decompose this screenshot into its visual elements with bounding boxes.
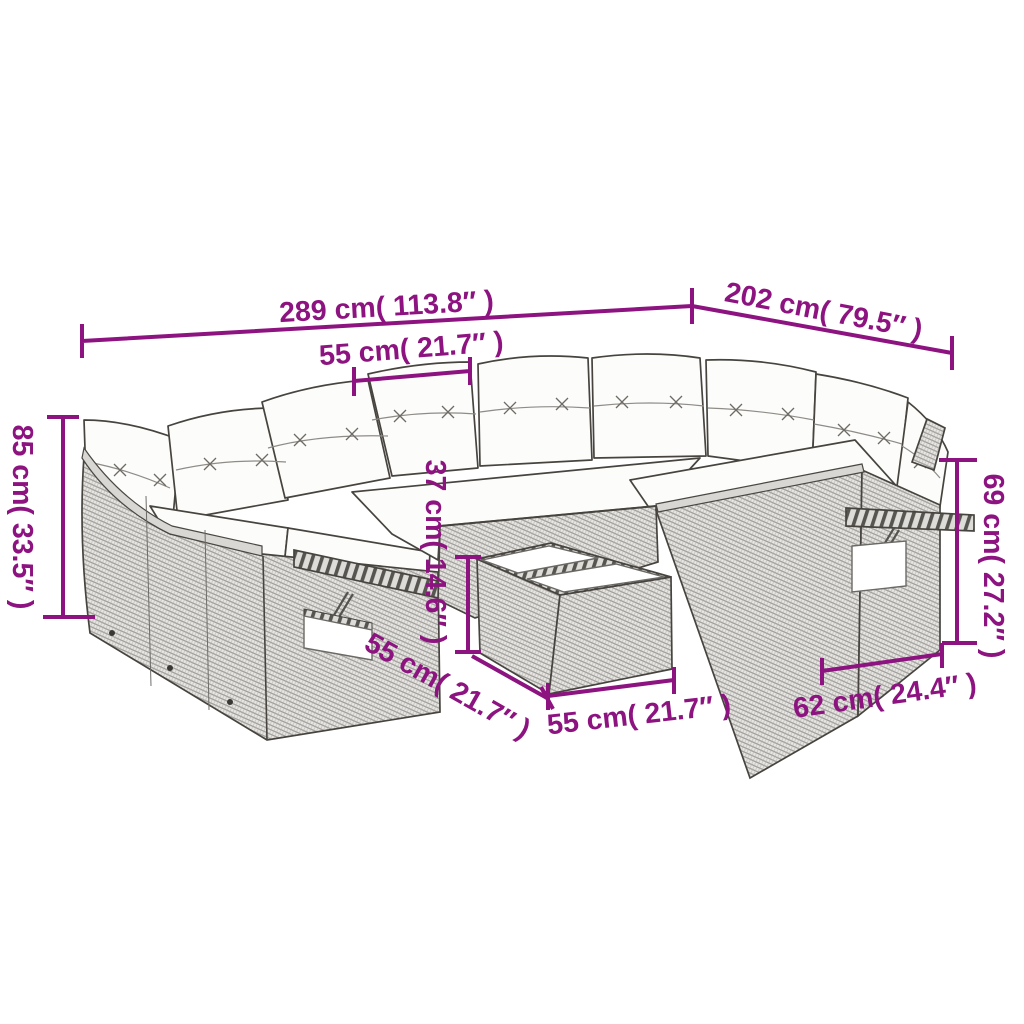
back-cushion: [478, 356, 592, 466]
back-cushion: [592, 354, 706, 458]
dim-line-69: [939, 460, 977, 668]
product-dimension-diagram: 289 cm( 113.8″ ) 202 cm( 79.5″ ) 55 cm( …: [0, 0, 1024, 1024]
dim-label-85: 85 cm( 33.5″ ): [6, 425, 38, 610]
dim-label-202: 202 cm( 79.5″ ): [722, 276, 925, 346]
dim-label-37: 37 cm( 14.6″ ): [419, 460, 451, 645]
right-folding-tray-slats: [846, 508, 974, 531]
back-cushion: [262, 380, 390, 498]
dim-right-side-depth: 202 cm( 79.5″ ): [692, 276, 952, 370]
right-inner-wicker: [656, 470, 862, 778]
dim-armrest-height: 69 cm( 27.2″ ): [939, 460, 1009, 668]
dim-label-289: 289 cm( 113.8″ ): [278, 285, 494, 329]
diagram-canvas: 289 cm( 113.8″ ) 202 cm( 79.5″ ) 55 cm( …: [0, 0, 1024, 1024]
dim-label-69: 69 cm( 27.2″ ): [977, 474, 1009, 659]
dim-label-55-front: 55 cm( 21.7″ ): [545, 689, 732, 742]
right-glass-panel: [852, 541, 906, 592]
